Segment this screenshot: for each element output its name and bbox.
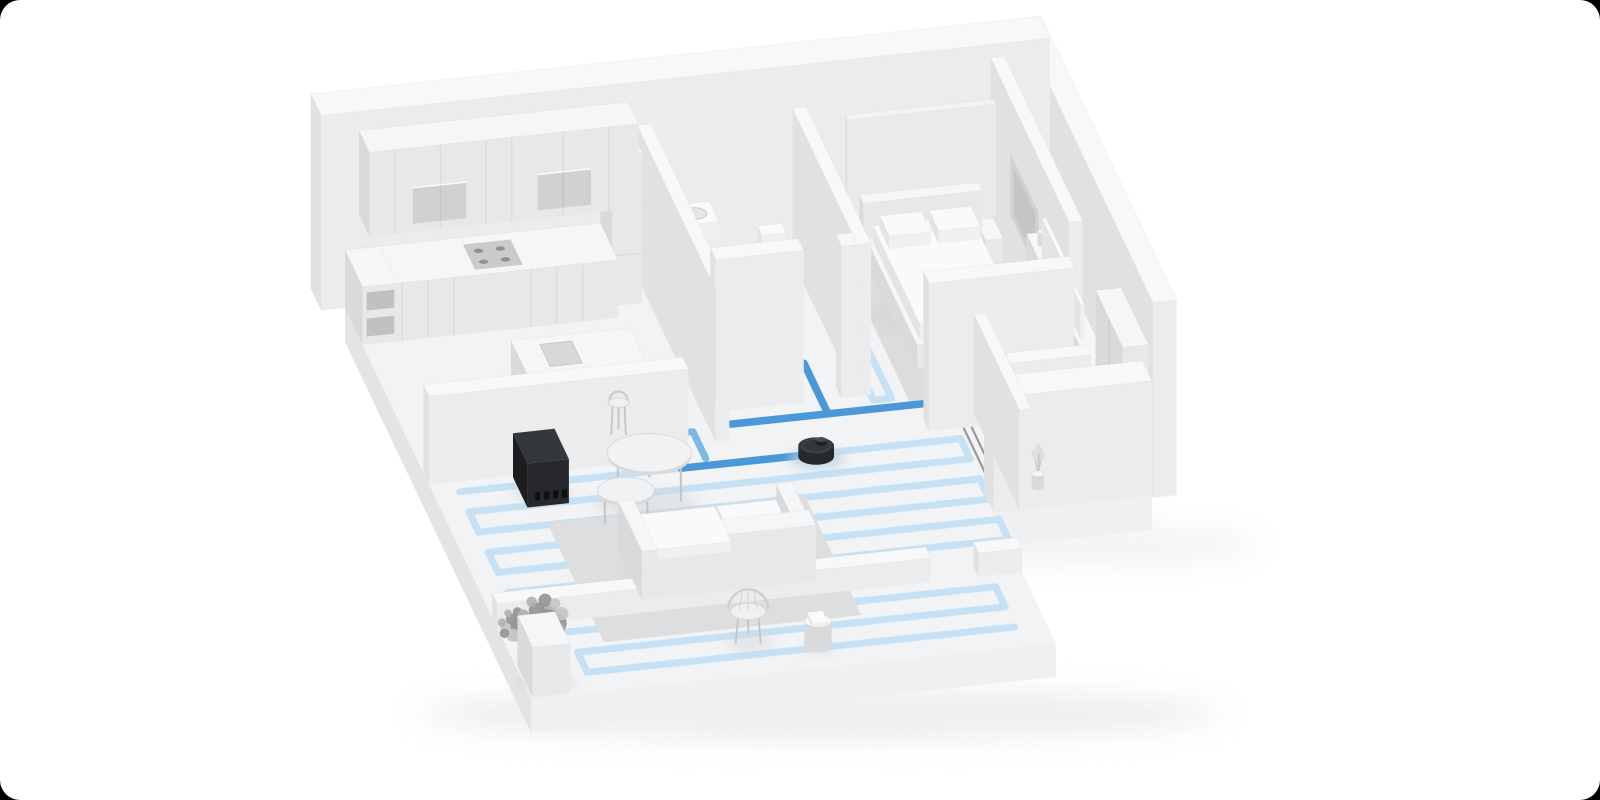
bed-pillow-right (929, 206, 980, 244)
robot-vacuum (798, 437, 834, 465)
bathroom-south-wall-b (836, 233, 858, 398)
flower-vase (1032, 471, 1045, 491)
balcony-ledge-east (973, 538, 1022, 578)
floorplan-render (0, 0, 1600, 800)
bathroom-south-wall-a (710, 239, 804, 412)
bed-pillow-left (880, 212, 931, 250)
screenshot-card (0, 0, 1600, 800)
